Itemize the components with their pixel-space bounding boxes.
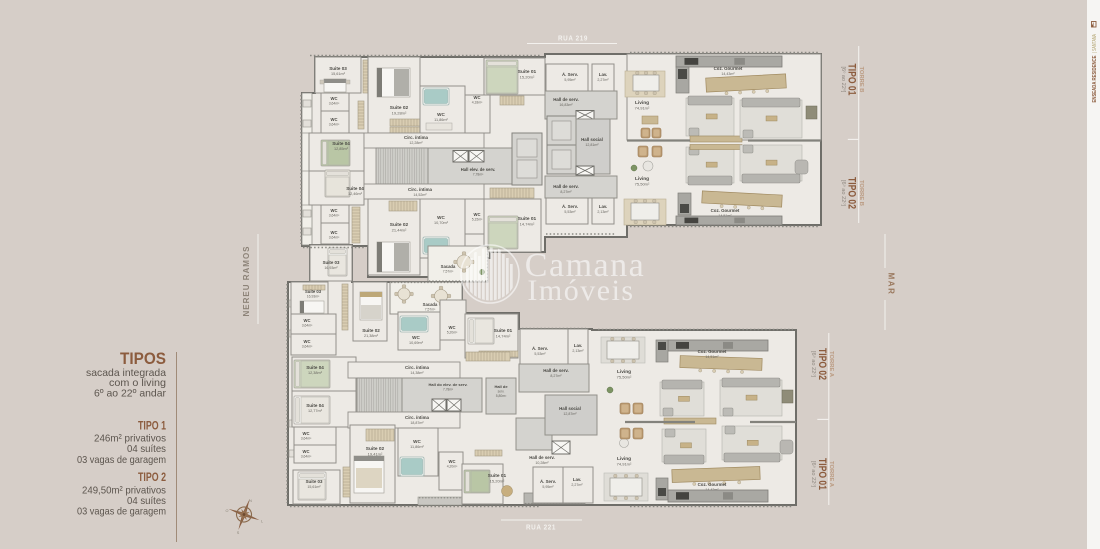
svg-text:Lav.: Lav. xyxy=(599,72,607,77)
svg-text:14,52m²: 14,52m² xyxy=(413,193,427,197)
svg-text:WC: WC xyxy=(437,215,445,220)
svg-text:3,64m²: 3,64m² xyxy=(329,123,340,127)
svg-text:WC: WC xyxy=(304,318,311,323)
svg-text:Hall de: Hall de xyxy=(494,384,508,389)
svg-text:14,74m²: 14,74m² xyxy=(520,221,535,226)
svg-text:TIPO 01: TIPO 01 xyxy=(816,458,828,490)
svg-text:WC: WC xyxy=(412,335,420,340)
svg-text:5,95m²: 5,95m² xyxy=(564,78,576,82)
svg-text:14,51m²: 14,51m² xyxy=(705,355,719,359)
svg-text:ENSEADA RESIDENCE: ENSEADA RESIDENCE xyxy=(1092,55,1098,102)
svg-text:14,38m²: 14,38m² xyxy=(410,371,424,375)
svg-text:12,87m²: 12,87m² xyxy=(563,412,577,416)
svg-text:WC: WC xyxy=(449,459,456,464)
svg-text:Hall social: Hall social xyxy=(581,137,603,142)
svg-text:Hall de serv.: Hall de serv. xyxy=(553,97,579,102)
svg-text:Lav.: Lav. xyxy=(573,477,581,482)
svg-text:Coz. Gourmet: Coz. Gourmet xyxy=(714,66,743,71)
svg-text:WC: WC xyxy=(413,439,421,444)
svg-text:WC: WC xyxy=(331,230,338,235)
svg-text:TIPO 1: TIPO 1 xyxy=(138,421,166,433)
svg-text:75,50m²: 75,50m² xyxy=(617,374,632,379)
svg-text:8,27m²: 8,27m² xyxy=(550,374,562,378)
svg-text:Sacada: Sacada xyxy=(441,264,456,269)
svg-text:Coz. Gourmet: Coz. Gourmet xyxy=(711,208,740,213)
svg-text:N: N xyxy=(249,499,252,503)
svg-text:74,91m²: 74,91m² xyxy=(617,461,632,466)
svg-text:Suite 04: Suite 04 xyxy=(306,403,324,408)
svg-text:7,57m²: 7,57m² xyxy=(443,270,454,274)
svg-text:12,28m²: 12,28m² xyxy=(409,141,423,145)
svg-text:WC: WC xyxy=(474,95,481,100)
svg-text:2,13m²: 2,13m² xyxy=(597,210,609,214)
svg-text:8,27m²: 8,27m² xyxy=(560,190,572,194)
svg-text:Hall de serv.: Hall de serv. xyxy=(529,455,555,460)
svg-text:74,91m²: 74,91m² xyxy=(635,105,650,110)
svg-text:TORRE A: TORRE A xyxy=(828,461,834,487)
svg-text:7,78m²: 7,78m² xyxy=(443,388,453,392)
svg-text:5,15m²: 5,15m² xyxy=(472,218,483,222)
svg-text:Hall de serv.: Hall de serv. xyxy=(553,184,579,189)
svg-text:WC: WC xyxy=(331,208,338,213)
svg-text:Á. Serv.: Á. Serv. xyxy=(562,204,578,209)
svg-text:TORRE B: TORRE B xyxy=(858,67,864,93)
svg-text:WC: WC xyxy=(331,117,338,122)
svg-text:7,78m²: 7,78m² xyxy=(473,173,484,177)
svg-text:[6º ao 22º]: [6º ao 22º] xyxy=(810,351,816,378)
svg-text:3,64m²: 3,64m² xyxy=(302,324,313,328)
svg-text:19,41m²: 19,41m² xyxy=(368,451,383,456)
svg-text:15,20m²: 15,20m² xyxy=(490,478,505,483)
svg-text:10,70m²: 10,70m² xyxy=(434,221,449,225)
svg-text:3,64m²: 3,64m² xyxy=(329,214,340,218)
svg-text:Hall de serv.: Hall de serv. xyxy=(543,368,569,373)
svg-text:12,85m²: 12,85m² xyxy=(334,147,349,151)
svg-text:TORRE B: TORRE B xyxy=(858,180,864,206)
svg-text:Á. Serv.: Á. Serv. xyxy=(532,346,548,351)
svg-text:12,77m²: 12,77m² xyxy=(308,409,323,413)
svg-text:TORRE A: TORRE A xyxy=(828,351,834,377)
svg-text:Suite 04: Suite 04 xyxy=(332,141,350,146)
svg-text:18,87m²: 18,87m² xyxy=(410,421,424,425)
svg-text:NEREU RAMOS: NEREU RAMOS xyxy=(242,245,251,316)
svg-text:5,95m²: 5,95m² xyxy=(542,485,554,489)
svg-text:Circ. íntima: Circ. íntima xyxy=(408,187,432,192)
svg-text:TIPO 02: TIPO 02 xyxy=(846,177,858,209)
svg-text:19,28m²: 19,28m² xyxy=(392,110,407,115)
svg-text:4,20m²: 4,20m² xyxy=(447,465,458,469)
svg-text:3,64m²: 3,64m² xyxy=(329,236,340,240)
svg-text:16,83m²: 16,83m² xyxy=(559,103,573,107)
svg-text:Hall elev. de serv.: Hall elev. de serv. xyxy=(461,167,496,172)
svg-text:16,93m²: 16,93m² xyxy=(307,295,320,299)
svg-text:O: O xyxy=(226,509,229,513)
svg-text:14,74m²: 14,74m² xyxy=(496,333,511,338)
svg-text:Suite 03: Suite 03 xyxy=(323,260,340,265)
svg-text:TIPOS: TIPOS xyxy=(120,349,166,368)
svg-text:WC: WC xyxy=(449,325,456,330)
svg-text:WC: WC xyxy=(303,431,310,436)
svg-text:Lav.: Lav. xyxy=(574,343,582,348)
svg-text:5,53m²: 5,53m² xyxy=(534,352,546,356)
svg-text:Á. Serv.: Á. Serv. xyxy=(562,72,578,77)
svg-text:3,64m²: 3,64m² xyxy=(329,102,340,106)
svg-text:5,53m²: 5,53m² xyxy=(564,210,576,214)
svg-text:12,38m²: 12,38m² xyxy=(308,371,323,375)
svg-text:serv.: serv. xyxy=(498,390,505,394)
svg-text:Imóveis: Imóveis xyxy=(527,274,634,307)
svg-text:11,86m²: 11,86m² xyxy=(410,445,424,449)
svg-text:5,20m²: 5,20m² xyxy=(447,331,458,335)
svg-text:3,64m²: 3,64m² xyxy=(302,345,313,349)
svg-text:Sacada: Sacada xyxy=(423,302,438,307)
svg-text:Circ. íntima: Circ. íntima xyxy=(405,415,429,420)
svg-text:03 vagas de garagem: 03 vagas de garagem xyxy=(77,454,166,466)
svg-text:WC: WC xyxy=(437,112,445,117)
svg-text:TIPO 02: TIPO 02 xyxy=(816,348,828,380)
svg-text:[6º ao 22º]: [6º ao 22º] xyxy=(840,67,846,94)
svg-text:Circ. íntima: Circ. íntima xyxy=(404,135,428,140)
svg-text:WC: WC xyxy=(303,449,310,454)
svg-text:MAR: MAR xyxy=(887,273,896,296)
svg-text:Suite 03: Suite 03 xyxy=(305,289,322,294)
svg-text:TIPO 2: TIPO 2 xyxy=(138,472,166,484)
svg-text:Hall do elev. de serv.: Hall do elev. de serv. xyxy=(429,382,468,387)
svg-text:14,43m²: 14,43m² xyxy=(721,72,735,76)
svg-text:10,28m²: 10,28m² xyxy=(535,461,549,465)
svg-text:RUA 219: RUA 219 xyxy=(558,34,588,43)
svg-text:[6º ao 22º]: [6º ao 22º] xyxy=(840,180,846,207)
svg-text:2,13m²: 2,13m² xyxy=(572,349,584,353)
svg-text:15,61m²: 15,61m² xyxy=(331,72,346,76)
svg-text:S: S xyxy=(237,531,240,535)
svg-text:12,81m²: 12,81m² xyxy=(585,143,599,147)
svg-text:2,27m²: 2,27m² xyxy=(597,78,609,82)
svg-text:WC: WC xyxy=(304,339,311,344)
svg-text:5,80m²: 5,80m² xyxy=(496,394,507,398)
svg-text:11,86m²: 11,86m² xyxy=(434,118,448,122)
svg-text:4,18m²: 4,18m² xyxy=(472,101,483,105)
svg-text:Suite 02: Suite 02 xyxy=(362,328,380,333)
svg-text:03 vagas de garagem: 03 vagas de garagem xyxy=(77,506,166,518)
svg-text:[6º ao 22º]: [6º ao 22º] xyxy=(810,461,816,488)
svg-text:Á. Serv.: Á. Serv. xyxy=(540,479,556,484)
svg-text:Coz. Gourmet: Coz. Gourmet xyxy=(698,349,727,354)
svg-text:12,46m²: 12,46m² xyxy=(348,192,363,196)
svg-text:21,44m²: 21,44m² xyxy=(392,227,407,232)
svg-text:TIPO 01: TIPO 01 xyxy=(846,64,858,96)
svg-text:L: L xyxy=(261,520,263,524)
svg-text:75,50m²: 75,50m² xyxy=(635,181,650,186)
svg-text:7,57m²: 7,57m² xyxy=(425,308,436,312)
svg-text:Suite 04: Suite 04 xyxy=(346,186,364,191)
svg-text:3,64m²: 3,64m² xyxy=(301,437,312,441)
svg-text:2,27m²: 2,27m² xyxy=(571,483,583,487)
svg-text:3,64m²: 3,64m² xyxy=(301,455,312,459)
svg-text:WC: WC xyxy=(474,212,481,217)
svg-text:Suite 04: Suite 04 xyxy=(306,365,324,370)
svg-text:Circ. íntima: Circ. íntima xyxy=(405,365,429,370)
svg-text:21,38m²: 21,38m² xyxy=(364,334,379,338)
svg-text:| SANTANA: | SANTANA xyxy=(1092,34,1098,53)
svg-text:15,20m²: 15,20m² xyxy=(520,74,535,79)
svg-text:Coz. Gourmet: Coz. Gourmet xyxy=(698,482,727,487)
svg-text:Lav.: Lav. xyxy=(599,204,607,209)
svg-text:15,61m²: 15,61m² xyxy=(307,485,321,489)
svg-text:10,69m²: 10,69m² xyxy=(409,341,424,345)
svg-text:WC: WC xyxy=(331,96,338,101)
svg-text:Hall social: Hall social xyxy=(559,406,581,411)
svg-text:Suite 03: Suite 03 xyxy=(306,479,323,484)
svg-text:Suite 03: Suite 03 xyxy=(329,66,347,71)
svg-text:16,93m²: 16,93m² xyxy=(324,266,338,270)
svg-text:6º ao 22º andar: 6º ao 22º andar xyxy=(94,388,166,400)
svg-text:RUA 221: RUA 221 xyxy=(526,523,556,532)
